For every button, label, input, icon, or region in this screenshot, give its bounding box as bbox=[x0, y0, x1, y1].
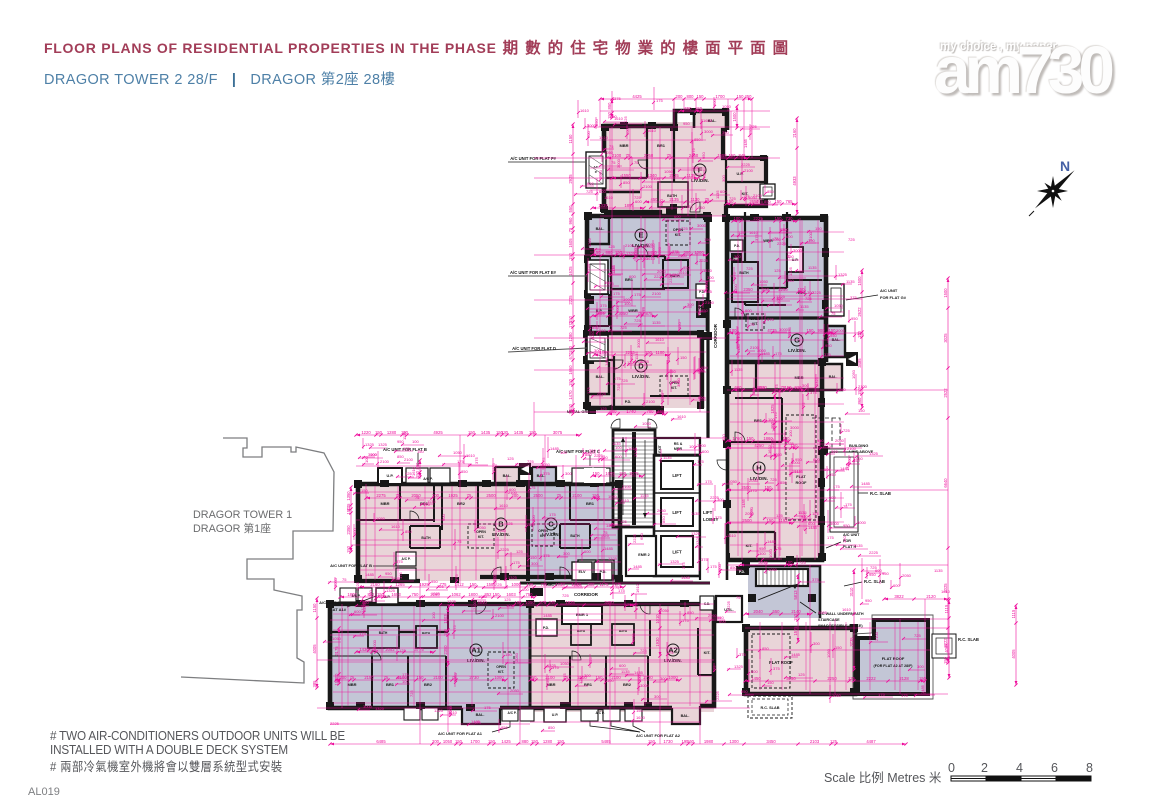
svg-text:BAL.: BAL. bbox=[476, 713, 485, 717]
svg-text:2350: 2350 bbox=[743, 287, 753, 292]
svg-text:100: 100 bbox=[776, 296, 783, 301]
svg-text:950: 950 bbox=[717, 615, 724, 620]
svg-text:125: 125 bbox=[588, 657, 593, 664]
svg-text:3000: 3000 bbox=[836, 328, 846, 333]
svg-text:150: 150 bbox=[417, 449, 424, 454]
svg-text:3000: 3000 bbox=[791, 460, 801, 465]
svg-text:150: 150 bbox=[594, 250, 602, 255]
svg-text:CORRIDOR: CORRIDOR bbox=[574, 592, 599, 597]
svg-text:1050: 1050 bbox=[642, 421, 652, 426]
svg-text:725: 725 bbox=[914, 633, 921, 638]
svg-text:150: 150 bbox=[943, 656, 948, 664]
svg-text:300: 300 bbox=[684, 250, 692, 255]
svg-text:1610: 1610 bbox=[703, 268, 713, 273]
svg-text:375: 375 bbox=[543, 471, 550, 476]
svg-text:A1: A1 bbox=[471, 646, 481, 655]
svg-text:A/C P.: A/C P. bbox=[508, 711, 517, 715]
svg-text:375: 375 bbox=[701, 557, 708, 562]
svg-text:1610: 1610 bbox=[678, 270, 688, 275]
svg-text:1050: 1050 bbox=[478, 594, 488, 599]
svg-text:2100: 2100 bbox=[433, 675, 443, 680]
svg-text:175: 175 bbox=[454, 574, 459, 581]
svg-text:2222: 2222 bbox=[866, 676, 876, 681]
svg-text:800: 800 bbox=[415, 462, 420, 470]
svg-text:100: 100 bbox=[689, 444, 696, 449]
svg-text:100: 100 bbox=[625, 128, 630, 135]
svg-text:125: 125 bbox=[848, 676, 856, 681]
svg-text:175: 175 bbox=[549, 512, 556, 517]
svg-text:150: 150 bbox=[767, 680, 774, 685]
svg-text:6485: 6485 bbox=[376, 739, 386, 744]
svg-text:1605: 1605 bbox=[568, 238, 573, 248]
svg-text:1485: 1485 bbox=[550, 446, 560, 451]
svg-text:200: 200 bbox=[432, 739, 440, 744]
svg-text:1050: 1050 bbox=[506, 603, 516, 608]
svg-text:A/C UNIT FOR FLAT A1: A/C UNIT FOR FLAT A1 bbox=[438, 731, 483, 736]
svg-text:100: 100 bbox=[730, 328, 738, 333]
svg-text:1050: 1050 bbox=[443, 739, 453, 744]
svg-text:150: 150 bbox=[375, 430, 383, 435]
svg-text:375: 375 bbox=[754, 234, 759, 241]
svg-text:6: 6 bbox=[1051, 761, 1058, 775]
svg-text:1555: 1555 bbox=[717, 153, 727, 158]
svg-text:1485: 1485 bbox=[604, 356, 609, 366]
svg-text:375: 375 bbox=[691, 148, 696, 155]
svg-text:125: 125 bbox=[738, 230, 745, 235]
svg-text:1325: 1325 bbox=[838, 272, 848, 277]
svg-text:DRAGOR 第1座: DRAGOR 第1座 bbox=[193, 521, 271, 535]
svg-text:75: 75 bbox=[801, 402, 806, 407]
svg-text:1135: 1135 bbox=[808, 265, 817, 270]
svg-text:150: 150 bbox=[793, 613, 798, 621]
svg-text:880: 880 bbox=[522, 739, 530, 744]
svg-text:1050: 1050 bbox=[834, 303, 844, 308]
svg-text:KIT.: KIT. bbox=[498, 670, 504, 674]
svg-text:1062: 1062 bbox=[451, 592, 461, 597]
svg-text:FOR FLAT G#: FOR FLAT G# bbox=[880, 295, 907, 300]
svg-text:850: 850 bbox=[661, 516, 666, 523]
svg-text:2100: 2100 bbox=[622, 484, 632, 489]
svg-text:1610: 1610 bbox=[631, 632, 636, 642]
svg-text:150: 150 bbox=[592, 493, 600, 498]
svg-text:1050: 1050 bbox=[768, 548, 773, 558]
svg-text:A/C UNIT: A/C UNIT bbox=[880, 288, 898, 293]
svg-text:600: 600 bbox=[893, 583, 900, 588]
svg-text:1325: 1325 bbox=[355, 581, 360, 591]
svg-text:R.C. SLAB: R.C. SLAB bbox=[958, 637, 979, 642]
svg-text:600: 600 bbox=[619, 663, 626, 668]
svg-text:2500: 2500 bbox=[533, 493, 543, 498]
svg-text:8: 8 bbox=[1086, 761, 1093, 775]
svg-text:150: 150 bbox=[729, 153, 737, 158]
svg-text:BAL.: BAL. bbox=[681, 714, 690, 718]
svg-text:1050: 1050 bbox=[728, 479, 738, 484]
svg-text:700: 700 bbox=[647, 409, 655, 414]
svg-text:2135: 2135 bbox=[669, 197, 679, 202]
svg-text:1325: 1325 bbox=[378, 442, 388, 447]
svg-text:MBR: MBR bbox=[619, 143, 628, 148]
svg-text:575: 575 bbox=[540, 600, 548, 605]
svg-text:2225: 2225 bbox=[741, 162, 751, 167]
svg-text:1325: 1325 bbox=[691, 531, 701, 536]
svg-text:1485: 1485 bbox=[703, 289, 713, 294]
svg-text:3000: 3000 bbox=[830, 521, 840, 526]
svg-text:150: 150 bbox=[415, 470, 420, 478]
svg-text:150: 150 bbox=[697, 94, 705, 99]
svg-text:FLAT ROOF: FLAT ROOF bbox=[882, 656, 905, 661]
svg-text:BR2: BR2 bbox=[623, 682, 632, 687]
svg-text:1610: 1610 bbox=[727, 533, 737, 538]
svg-text:5813: 5813 bbox=[793, 590, 798, 600]
svg-text:75: 75 bbox=[750, 322, 755, 327]
svg-text:EMR 2: EMR 2 bbox=[638, 553, 650, 557]
svg-text:1050: 1050 bbox=[608, 494, 618, 499]
svg-text:3110: 3110 bbox=[849, 587, 854, 597]
svg-text:850: 850 bbox=[780, 227, 787, 232]
svg-text:FLAT: FLAT bbox=[796, 475, 806, 479]
svg-text:725: 725 bbox=[770, 477, 777, 482]
svg-text:1115: 1115 bbox=[1011, 609, 1016, 618]
svg-text:75: 75 bbox=[667, 153, 672, 158]
svg-text:100: 100 bbox=[364, 456, 369, 463]
svg-text:125: 125 bbox=[399, 648, 406, 653]
svg-text:375: 375 bbox=[750, 488, 757, 493]
svg-text:1325: 1325 bbox=[447, 599, 457, 604]
svg-text:2225: 2225 bbox=[715, 690, 720, 700]
svg-text:450: 450 bbox=[651, 197, 659, 202]
svg-text:1485: 1485 bbox=[633, 564, 643, 569]
svg-text:1610: 1610 bbox=[941, 589, 951, 594]
svg-text:100: 100 bbox=[560, 450, 567, 455]
svg-text:300: 300 bbox=[734, 254, 741, 259]
svg-text:600: 600 bbox=[615, 454, 622, 459]
svg-text:150: 150 bbox=[762, 287, 770, 292]
svg-text:725: 725 bbox=[527, 459, 534, 464]
svg-text:1050: 1050 bbox=[453, 450, 463, 455]
svg-text:3075: 3075 bbox=[629, 471, 639, 476]
svg-text:1700: 1700 bbox=[715, 94, 725, 99]
svg-text:150: 150 bbox=[648, 739, 656, 744]
svg-text:1325: 1325 bbox=[869, 451, 879, 456]
svg-text:1485: 1485 bbox=[756, 385, 766, 390]
svg-text:100: 100 bbox=[528, 522, 535, 527]
svg-text:725: 725 bbox=[437, 584, 444, 589]
svg-text:150: 150 bbox=[783, 436, 791, 441]
svg-text:A/C P.: A/C P. bbox=[596, 711, 605, 715]
svg-text:300: 300 bbox=[802, 383, 809, 388]
svg-text:1485: 1485 bbox=[543, 613, 553, 618]
svg-text:1425: 1425 bbox=[501, 739, 511, 744]
svg-text:3000: 3000 bbox=[818, 610, 828, 615]
svg-text:1115: 1115 bbox=[944, 604, 949, 613]
svg-text:375: 375 bbox=[552, 665, 559, 670]
svg-text:1135: 1135 bbox=[846, 279, 855, 284]
svg-text:BR1: BR1 bbox=[386, 682, 395, 687]
svg-text:100: 100 bbox=[352, 528, 357, 535]
svg-text:150: 150 bbox=[468, 430, 476, 435]
svg-text:2050: 2050 bbox=[510, 688, 520, 693]
svg-text:1135: 1135 bbox=[691, 511, 700, 516]
svg-text:375: 375 bbox=[614, 96, 621, 101]
svg-text:A/C UNIT FOR FLAT E#: A/C UNIT FOR FLAT E# bbox=[510, 270, 557, 275]
svg-text:1000: 1000 bbox=[694, 250, 704, 255]
svg-text:725: 725 bbox=[545, 678, 550, 685]
svg-text:WBR: WBR bbox=[628, 308, 638, 313]
svg-text:150: 150 bbox=[835, 645, 842, 650]
svg-text:2730: 2730 bbox=[469, 675, 479, 680]
svg-text:1485: 1485 bbox=[604, 546, 614, 551]
svg-text:300: 300 bbox=[831, 449, 838, 454]
svg-text:75: 75 bbox=[384, 675, 389, 680]
svg-text:600: 600 bbox=[702, 449, 709, 454]
svg-text:150: 150 bbox=[346, 545, 351, 553]
svg-text:175: 175 bbox=[697, 459, 704, 464]
svg-text:150: 150 bbox=[786, 560, 794, 565]
svg-text:175: 175 bbox=[568, 320, 573, 328]
svg-text:850: 850 bbox=[405, 529, 412, 534]
svg-text:765: 765 bbox=[786, 199, 794, 204]
svg-text:4005: 4005 bbox=[312, 644, 317, 654]
svg-text:150: 150 bbox=[455, 739, 463, 744]
svg-text:1730: 1730 bbox=[663, 739, 673, 744]
svg-text:450: 450 bbox=[745, 94, 753, 99]
svg-text:2100: 2100 bbox=[404, 457, 414, 462]
svg-text:950: 950 bbox=[843, 523, 850, 528]
svg-text:1485: 1485 bbox=[681, 575, 691, 580]
svg-text:175: 175 bbox=[656, 98, 663, 103]
svg-text:1485: 1485 bbox=[696, 368, 706, 373]
svg-text:725: 725 bbox=[870, 565, 877, 570]
svg-text:1050: 1050 bbox=[768, 567, 778, 572]
svg-text:4250: 4250 bbox=[754, 443, 764, 448]
svg-text:100: 100 bbox=[637, 675, 642, 682]
svg-text:375: 375 bbox=[739, 652, 746, 657]
svg-text:2225: 2225 bbox=[586, 263, 591, 273]
svg-text:1050: 1050 bbox=[748, 195, 758, 200]
svg-text:600: 600 bbox=[610, 409, 618, 414]
svg-text:LIV./DIN.: LIV./DIN. bbox=[632, 374, 650, 379]
svg-text:1050: 1050 bbox=[525, 600, 535, 605]
svg-text:P.D.: P.D. bbox=[739, 570, 745, 574]
svg-text:2050: 2050 bbox=[902, 573, 912, 578]
svg-text:1610: 1610 bbox=[378, 594, 388, 599]
svg-text:1030: 1030 bbox=[555, 582, 565, 587]
svg-text:850: 850 bbox=[780, 480, 787, 485]
svg-text:1100: 1100 bbox=[655, 350, 665, 355]
svg-text:75: 75 bbox=[705, 197, 710, 202]
svg-text:1610: 1610 bbox=[842, 607, 852, 612]
svg-text:2225: 2225 bbox=[568, 295, 573, 305]
svg-text:125: 125 bbox=[504, 597, 511, 602]
svg-text:1325: 1325 bbox=[365, 442, 375, 447]
svg-text:MBR: MBR bbox=[794, 375, 803, 380]
svg-text:MBR: MBR bbox=[347, 682, 356, 687]
svg-text:1000: 1000 bbox=[494, 675, 504, 680]
svg-text:3075: 3075 bbox=[553, 430, 563, 435]
svg-text:600: 600 bbox=[745, 308, 752, 313]
svg-text:725: 725 bbox=[640, 648, 647, 653]
svg-text:950: 950 bbox=[851, 316, 858, 321]
svg-text:2100: 2100 bbox=[625, 243, 635, 248]
svg-text:LIV./DIN.: LIV./DIN. bbox=[788, 348, 806, 353]
svg-text:A/C P.: A/C P. bbox=[423, 477, 433, 481]
svg-text:375: 375 bbox=[767, 317, 774, 322]
svg-text:1135: 1135 bbox=[621, 669, 630, 674]
svg-text:150: 150 bbox=[346, 507, 351, 515]
svg-text:920: 920 bbox=[795, 385, 803, 390]
svg-text:1660: 1660 bbox=[568, 365, 573, 375]
svg-text:600: 600 bbox=[586, 131, 591, 138]
svg-text:2100: 2100 bbox=[368, 589, 373, 599]
svg-text:385: 385 bbox=[312, 680, 317, 688]
svg-text:175: 175 bbox=[833, 484, 840, 489]
svg-text:1280: 1280 bbox=[543, 739, 553, 744]
svg-text:KIT.: KIT. bbox=[478, 535, 484, 539]
svg-text:600: 600 bbox=[584, 549, 591, 554]
svg-text:375: 375 bbox=[396, 559, 403, 564]
svg-text:U.P.: U.P. bbox=[387, 474, 394, 478]
svg-text:2100: 2100 bbox=[472, 600, 477, 610]
svg-text:725: 725 bbox=[695, 172, 702, 177]
svg-text:150: 150 bbox=[798, 287, 806, 292]
svg-text:125: 125 bbox=[692, 165, 699, 170]
svg-text:175: 175 bbox=[845, 464, 850, 471]
svg-text:1610: 1610 bbox=[628, 446, 638, 451]
svg-text:A/C: A/C bbox=[593, 165, 599, 169]
svg-text:550: 550 bbox=[568, 205, 573, 213]
svg-text:725: 725 bbox=[750, 124, 757, 129]
svg-text:2225: 2225 bbox=[710, 495, 720, 500]
svg-text:1265: 1265 bbox=[395, 582, 405, 587]
svg-text:1485: 1485 bbox=[791, 652, 801, 657]
svg-text:1610: 1610 bbox=[499, 503, 509, 508]
svg-text:1980: 1980 bbox=[704, 739, 714, 744]
svg-text:3000: 3000 bbox=[790, 425, 800, 430]
svg-text:100: 100 bbox=[412, 439, 419, 444]
svg-text:1050: 1050 bbox=[332, 636, 342, 641]
svg-text:725: 725 bbox=[729, 196, 736, 201]
svg-text:1280: 1280 bbox=[568, 332, 573, 342]
svg-text:375: 375 bbox=[732, 272, 737, 279]
svg-text:100: 100 bbox=[531, 515, 536, 522]
svg-text:1350: 1350 bbox=[346, 491, 351, 501]
svg-text:850: 850 bbox=[461, 469, 468, 474]
svg-text:150: 150 bbox=[493, 592, 501, 597]
svg-text:300: 300 bbox=[733, 284, 738, 291]
svg-text:950: 950 bbox=[882, 571, 889, 576]
svg-text:375: 375 bbox=[812, 577, 819, 582]
svg-text:160: 160 bbox=[687, 739, 695, 744]
svg-text:75: 75 bbox=[638, 311, 643, 316]
svg-text:A/C UNIT FOR FLAT D: A/C UNIT FOR FLAT D bbox=[512, 346, 556, 351]
svg-text:175: 175 bbox=[402, 672, 409, 677]
svg-text:3000: 3000 bbox=[697, 223, 707, 228]
svg-text:150: 150 bbox=[593, 471, 601, 476]
svg-text:2225: 2225 bbox=[869, 550, 879, 555]
svg-text:1280: 1280 bbox=[387, 430, 397, 435]
svg-text:3450: 3450 bbox=[766, 739, 776, 744]
svg-text:1925: 1925 bbox=[419, 582, 429, 587]
svg-text:P.D.: P.D. bbox=[543, 626, 549, 630]
svg-text:125: 125 bbox=[830, 739, 838, 744]
svg-text:MBR: MBR bbox=[380, 501, 389, 506]
svg-text:800: 800 bbox=[687, 94, 695, 99]
svg-text:2100: 2100 bbox=[651, 176, 661, 181]
svg-text:75: 75 bbox=[777, 546, 782, 551]
svg-text:1325: 1325 bbox=[431, 591, 441, 596]
svg-text:950: 950 bbox=[825, 343, 832, 348]
svg-text:BR1: BR1 bbox=[586, 501, 595, 506]
svg-text:EXIT: EXIT bbox=[658, 444, 662, 452]
svg-text:3000: 3000 bbox=[704, 129, 714, 134]
svg-text:300: 300 bbox=[588, 582, 596, 587]
svg-text:150: 150 bbox=[636, 708, 643, 713]
svg-text:2050: 2050 bbox=[657, 269, 667, 274]
svg-text:2100: 2100 bbox=[643, 184, 653, 189]
svg-text:200: 200 bbox=[676, 94, 684, 99]
svg-text:4487: 4487 bbox=[866, 739, 876, 744]
svg-text:725: 725 bbox=[634, 318, 641, 323]
svg-text:75: 75 bbox=[669, 650, 674, 655]
svg-text:850: 850 bbox=[701, 308, 708, 313]
svg-text:125: 125 bbox=[578, 677, 583, 684]
svg-text:1610: 1610 bbox=[391, 524, 401, 529]
svg-text:2350: 2350 bbox=[346, 525, 351, 535]
svg-text:300: 300 bbox=[565, 471, 572, 476]
svg-text:1039: 1039 bbox=[595, 311, 605, 316]
svg-text:1050: 1050 bbox=[722, 104, 732, 109]
svg-text:1325: 1325 bbox=[375, 706, 385, 711]
svg-text:75: 75 bbox=[568, 409, 573, 414]
svg-text:1485: 1485 bbox=[365, 572, 375, 577]
svg-text:550: 550 bbox=[773, 609, 781, 614]
svg-text:P.D.: P.D. bbox=[734, 244, 740, 248]
svg-text:200: 200 bbox=[340, 675, 348, 680]
svg-text:725: 725 bbox=[746, 266, 753, 271]
svg-text:ROOF: ROOF bbox=[796, 481, 808, 485]
svg-text:1150: 1150 bbox=[568, 134, 573, 144]
svg-text:725: 725 bbox=[843, 428, 850, 433]
svg-text:2050: 2050 bbox=[646, 242, 656, 247]
svg-text:600: 600 bbox=[720, 189, 727, 194]
svg-text:600: 600 bbox=[698, 395, 705, 400]
svg-text:1135: 1135 bbox=[934, 568, 943, 573]
svg-text:4: 4 bbox=[1016, 761, 1023, 775]
svg-text:2100: 2100 bbox=[744, 168, 754, 173]
svg-text:175: 175 bbox=[614, 376, 621, 381]
svg-text:125: 125 bbox=[516, 549, 523, 554]
svg-text:175: 175 bbox=[827, 535, 834, 540]
svg-text:175: 175 bbox=[878, 692, 885, 697]
svg-text:2050: 2050 bbox=[644, 153, 654, 158]
svg-text:2225: 2225 bbox=[597, 391, 607, 396]
svg-text:725: 725 bbox=[634, 195, 641, 200]
svg-text:3000: 3000 bbox=[636, 338, 641, 348]
svg-text:2050: 2050 bbox=[657, 508, 667, 513]
svg-text:BATH: BATH bbox=[739, 271, 749, 275]
svg-text:0: 0 bbox=[948, 761, 955, 775]
svg-text:1605: 1605 bbox=[605, 471, 615, 476]
svg-text:100: 100 bbox=[734, 216, 742, 221]
svg-text:375: 375 bbox=[810, 390, 817, 395]
svg-text:LIFT: LIFT bbox=[672, 510, 682, 515]
svg-text:4005: 4005 bbox=[944, 643, 949, 653]
svg-text:1610: 1610 bbox=[636, 715, 646, 720]
svg-text:2160: 2160 bbox=[792, 128, 797, 138]
svg-text:3045: 3045 bbox=[758, 560, 768, 565]
svg-text:600: 600 bbox=[639, 533, 644, 540]
svg-text:950: 950 bbox=[787, 278, 794, 283]
